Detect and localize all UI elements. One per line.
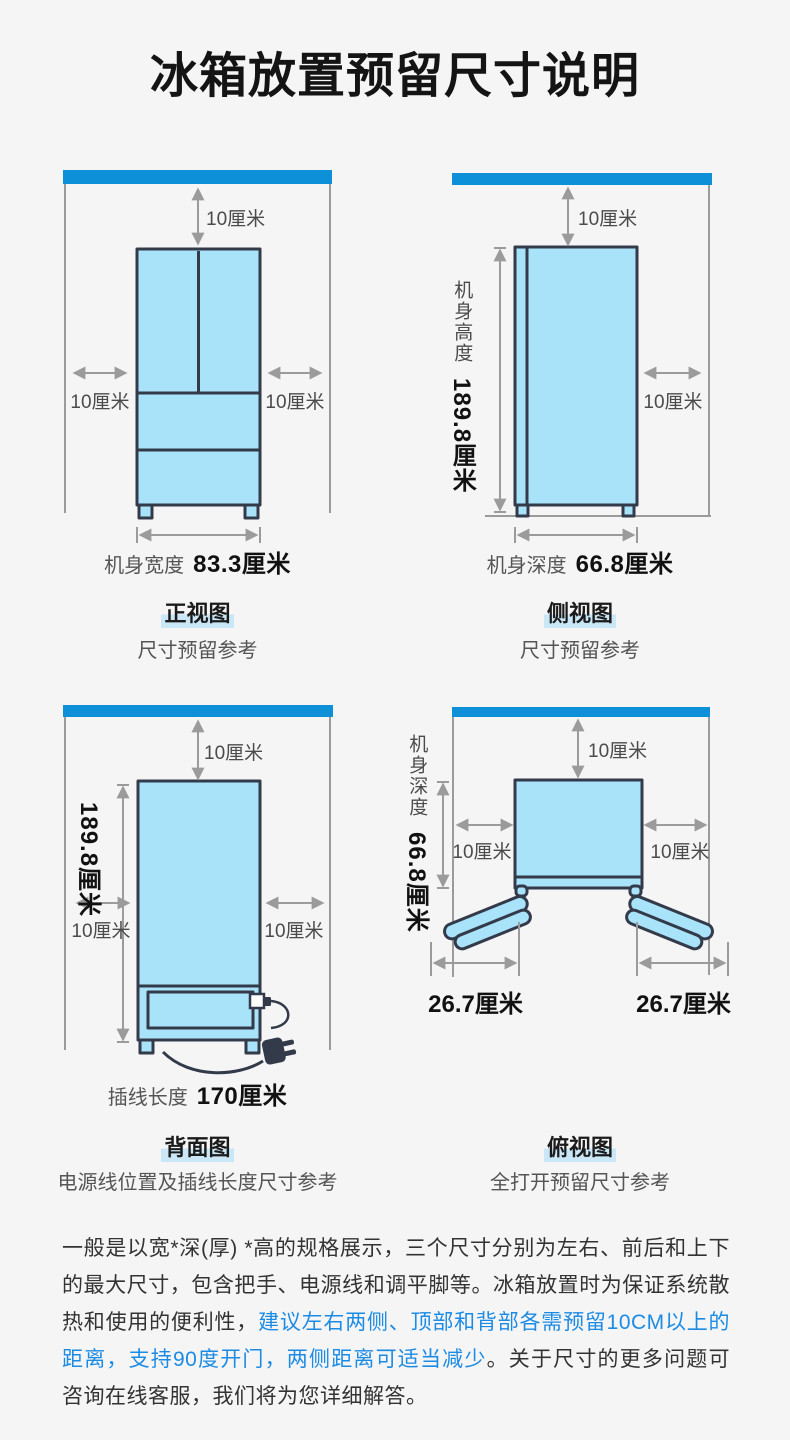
front-view-diagram xyxy=(50,160,345,670)
fridge-front-outline xyxy=(137,249,260,518)
fridge-top-outline xyxy=(515,780,642,896)
depth-value: 66.8厘米 xyxy=(403,832,430,933)
side-top-clearance-label: 10厘米 xyxy=(578,204,637,231)
height-dimension-arrow xyxy=(494,248,506,512)
depth-value: 66.8厘米 xyxy=(576,544,674,579)
top-right-clearance-label: 10厘米 xyxy=(644,837,716,864)
top-view-subtitle: 全打开预留尺寸参考 xyxy=(400,1166,760,1195)
power-plug-icon xyxy=(261,1034,297,1065)
front-width-dimension: 机身宽度 83.3厘米 xyxy=(50,544,345,579)
fridge-side-outline xyxy=(515,247,637,516)
cord-value: 170厘米 xyxy=(197,1076,288,1111)
side-view: 机身高度 189.8厘米 10厘米 10厘米 机身深度 66.8厘米 侧视图 尺… xyxy=(415,160,745,670)
front-view-subtitle: 尺寸预留参考 xyxy=(50,634,345,663)
depth-dimension-arrow xyxy=(437,782,449,888)
fridge-back-outline xyxy=(138,781,260,1053)
wall-bar xyxy=(452,707,710,717)
front-view-title: 正视图 xyxy=(50,596,345,628)
width-dimension-arrow xyxy=(137,527,260,543)
note-paragraph: 一般是以宽*深(厚) *高的规格展示，三个尺寸分别为左右、前后和上下的最大尺寸，… xyxy=(62,1230,730,1415)
top-depth-dimension: 机身深度 66.8厘米 xyxy=(404,734,429,933)
height-value: 189.8厘米 xyxy=(448,378,475,493)
width-label: 机身宽度 xyxy=(104,549,184,578)
side-right-clearance-label: 10厘米 xyxy=(643,387,703,414)
front-right-clearance-label: 10厘米 xyxy=(259,387,331,414)
side-height-dimension: 机身高度 189.8厘米 xyxy=(449,280,474,494)
front-top-clearance-label: 10厘米 xyxy=(206,204,265,231)
ceiling-bar xyxy=(63,705,333,717)
side-depth-dimension: 机身深度 66.8厘米 xyxy=(415,544,745,579)
depth-dimension-arrow xyxy=(515,527,637,543)
front-view: 10厘米 10厘米 10厘米 机身宽度 83.3厘米 正视图 尺寸预留参考 xyxy=(50,160,345,670)
height-dimension-arrow xyxy=(117,785,129,1042)
side-view-subtitle: 尺寸预留参考 xyxy=(415,634,745,663)
back-left-clearance-label: 10厘米 xyxy=(66,916,136,943)
top-top-clearance-label: 10厘米 xyxy=(588,736,647,763)
page-title: 冰箱放置预留尺寸说明 xyxy=(0,36,790,106)
ceiling-bar xyxy=(452,173,712,185)
depth-label: 机身深度 xyxy=(406,734,427,818)
door-left-open xyxy=(442,894,534,953)
door-right-value: 26.7厘米 xyxy=(626,984,741,1019)
front-left-clearance-label: 10厘米 xyxy=(64,387,136,414)
depth-label: 机身深度 xyxy=(487,549,567,578)
back-right-clearance-label: 10厘米 xyxy=(258,916,330,943)
refrigerator-clearance-guide: 冰箱放置预留尺寸说明 xyxy=(0,0,790,1440)
top-left-clearance-label: 10厘米 xyxy=(446,837,518,864)
back-view-title: 背面图 xyxy=(50,1130,345,1162)
cord-label: 插线长度 xyxy=(108,1081,188,1110)
door-left-value: 26.7厘米 xyxy=(418,984,533,1019)
back-view: 189.8厘米 10厘米 10厘米 10厘米 插线长度 170厘米 背面图 电源… xyxy=(50,690,345,1210)
height-value: 189.8厘米 xyxy=(75,802,102,917)
back-view-subtitle: 电源线位置及插线长度尺寸参考 xyxy=(50,1166,345,1195)
side-view-title: 侧视图 xyxy=(415,596,745,628)
top-view-title: 俯视图 xyxy=(400,1130,760,1162)
width-value: 83.3厘米 xyxy=(193,544,291,579)
back-height-dimension: 189.8厘米 xyxy=(76,792,101,917)
top-view: 机身深度 66.8厘米 10厘米 10厘米 10厘米 26.7厘米 26.7厘米… xyxy=(400,690,760,1210)
ceiling-bar xyxy=(63,170,332,184)
height-label: 机身高度 xyxy=(451,280,472,364)
cord-length-dimension: 插线长度 170厘米 xyxy=(50,1076,345,1111)
back-top-clearance-label: 10厘米 xyxy=(204,738,263,765)
